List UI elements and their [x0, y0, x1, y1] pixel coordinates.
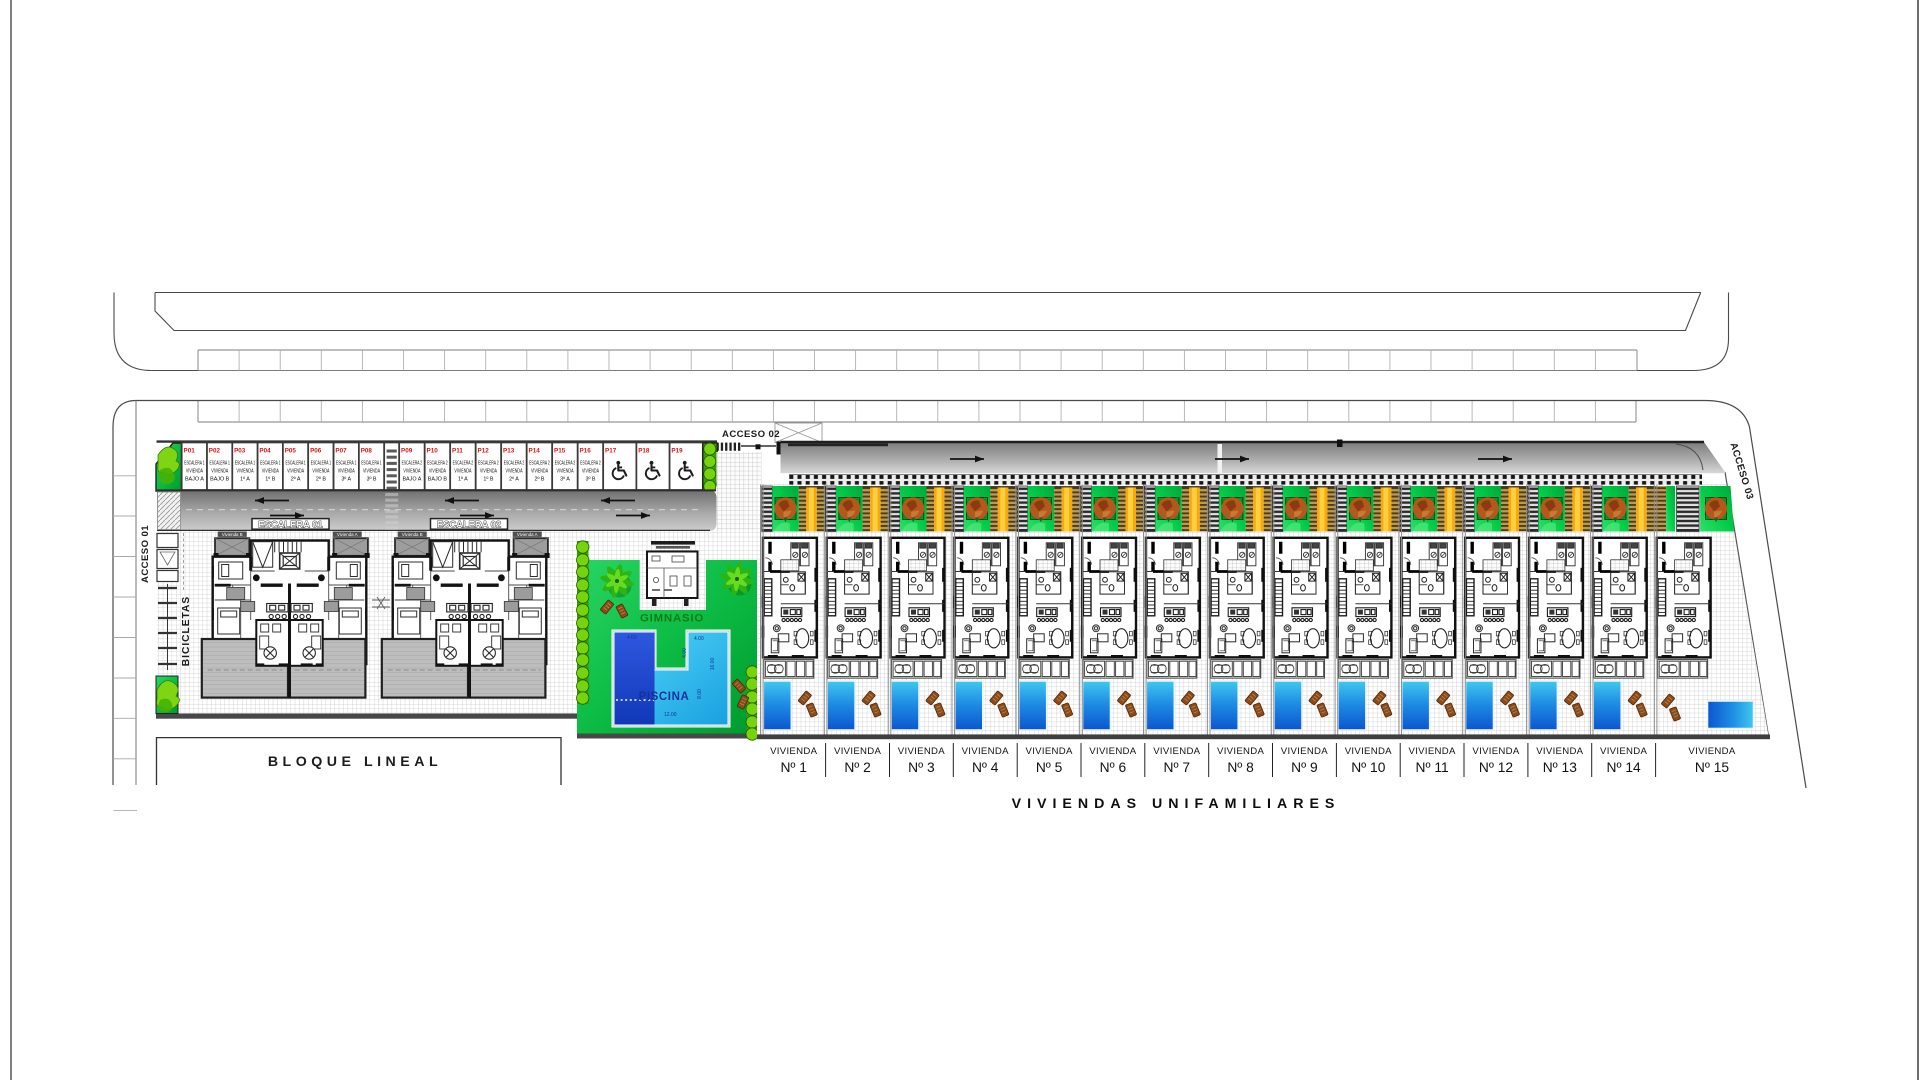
svg-text:P03: P03 [234, 448, 246, 455]
svg-text:16.00: 16.00 [710, 658, 716, 671]
svg-text:VIVIENDA: VIVIENDA [262, 469, 279, 475]
svg-text:Nº 13: Nº 13 [1543, 760, 1578, 775]
svg-text:P06: P06 [310, 448, 322, 455]
svg-text:Nº 7: Nº 7 [1164, 760, 1191, 775]
svg-text:P16: P16 [580, 448, 592, 455]
svg-text:VIVIENDA: VIVIENDA [454, 469, 471, 475]
svg-text:VIVIENDA: VIVIENDA [1688, 746, 1735, 757]
svg-text:Nº 9: Nº 9 [1291, 760, 1318, 775]
svg-text:VIVIENDA: VIVIENDA [1217, 746, 1264, 757]
svg-text:ESCALERA 1: ESCALERA 1 [336, 461, 356, 467]
svg-text:2º B: 2º B [534, 477, 544, 483]
svg-text:Nº 4: Nº 4 [972, 760, 999, 775]
svg-text:Nº 2: Nº 2 [844, 760, 871, 775]
svg-text:ESCALERA 1: ESCALERA 1 [235, 461, 255, 467]
svg-text:VIVIENDA: VIVIENDA [582, 469, 599, 475]
svg-text:ESCALERA 1: ESCALERA 1 [311, 461, 331, 467]
svg-text:P18: P18 [638, 448, 650, 455]
svg-text:P04: P04 [259, 448, 271, 455]
svg-text:ACCESO 02: ACCESO 02 [722, 429, 780, 440]
svg-text:2º A: 2º A [509, 477, 519, 483]
svg-text:ESCALERA 02: ESCALERA 02 [437, 518, 501, 529]
svg-text:3º A: 3º A [341, 477, 351, 483]
svg-text:1º B: 1º B [265, 477, 275, 483]
svg-text:VIVIENDA: VIVIENDA [898, 746, 945, 757]
svg-text:4.00: 4.00 [682, 648, 688, 658]
svg-text:P14: P14 [529, 448, 541, 455]
svg-text:VIVIENDA: VIVIENDA [1089, 746, 1136, 757]
svg-text:VIVIENDA: VIVIENDA [1026, 746, 1073, 757]
svg-text:P07: P07 [335, 448, 347, 455]
svg-text:P10: P10 [427, 448, 439, 455]
svg-text:Nº 15: Nº 15 [1695, 760, 1730, 775]
svg-text:P12: P12 [478, 448, 490, 455]
svg-text:ESCALERA 2: ESCALERA 2 [478, 461, 499, 467]
svg-text:VIVIENDA: VIVIENDA [1472, 746, 1519, 757]
svg-text:Nº 3: Nº 3 [908, 760, 935, 775]
svg-text:VIVIENDA: VIVIENDA [1281, 746, 1328, 757]
svg-text:VIVIENDA: VIVIENDA [1153, 746, 1200, 757]
svg-text:VIVIENDAS UNIFAMILIARES: VIVIENDAS UNIFAMILIARES [1012, 796, 1341, 812]
svg-text:BAJO B: BAJO B [428, 477, 448, 483]
svg-text:VIVIENDA: VIVIENDA [557, 469, 574, 475]
svg-text:3º B: 3º B [585, 477, 595, 483]
svg-text:3º A: 3º A [560, 477, 570, 483]
svg-text:4.00: 4.00 [694, 636, 704, 642]
svg-text:ESCALERA 1: ESCALERA 1 [361, 461, 381, 467]
svg-text:P01: P01 [184, 448, 196, 455]
svg-text:BICICLETAS: BICICLETAS [181, 596, 192, 666]
svg-text:VIVIENDA: VIVIENDA [338, 469, 355, 475]
svg-text:VIVIENDA: VIVIENDA [403, 469, 420, 475]
svg-text:GIMNASIO: GIMNASIO [640, 613, 704, 625]
svg-text:ESCALERA 01: ESCALERA 01 [258, 518, 322, 529]
svg-text:VIVIENDA: VIVIENDA [506, 469, 523, 475]
svg-text:ESCALERA 2: ESCALERA 2 [504, 461, 525, 467]
svg-text:P08: P08 [361, 448, 373, 455]
svg-text:VIVIENDA: VIVIENDA [211, 469, 228, 475]
svg-text:Vivienda A: Vivienda A [517, 532, 538, 537]
svg-text:P17: P17 [605, 448, 617, 455]
svg-text:Nº 5: Nº 5 [1036, 760, 1063, 775]
svg-text:8.00: 8.00 [697, 689, 703, 699]
svg-text:P15: P15 [554, 448, 566, 455]
svg-text:VIVIENDA: VIVIENDA [770, 746, 817, 757]
svg-text:P13: P13 [503, 448, 515, 455]
svg-text:Nº 1: Nº 1 [780, 760, 807, 775]
svg-text:VIVIENDA: VIVIENDA [1409, 746, 1456, 757]
svg-text:VIVIENDA: VIVIENDA [531, 469, 548, 475]
svg-text:VIVIENDA: VIVIENDA [1536, 746, 1583, 757]
svg-text:VIVIENDA: VIVIENDA [1600, 746, 1647, 757]
svg-text:ESCALERA 2: ESCALERA 2 [427, 461, 448, 467]
svg-text:P05: P05 [285, 448, 297, 455]
svg-text:Nº 11: Nº 11 [1416, 760, 1449, 775]
svg-text:ESCALERA 1: ESCALERA 1 [210, 461, 230, 467]
svg-text:ESCALERA 1: ESCALERA 1 [260, 461, 280, 467]
svg-text:1º B: 1º B [483, 477, 493, 483]
svg-text:VIVIENDA: VIVIENDA [1345, 746, 1392, 757]
svg-text:4.00: 4.00 [627, 635, 637, 641]
svg-text:ESCALERA 1: ESCALERA 1 [184, 461, 204, 467]
svg-text:PISCINA: PISCINA [639, 691, 690, 703]
svg-text:ESCALERA 1: ESCALERA 1 [285, 461, 305, 467]
svg-text:BAJO B: BAJO B [210, 477, 230, 483]
svg-text:VIVIENDA: VIVIENDA [312, 469, 329, 475]
svg-text:Nº 12: Nº 12 [1479, 760, 1513, 775]
svg-text:ACCESO 01: ACCESO 01 [140, 525, 151, 583]
svg-text:VIVIENDA: VIVIENDA [962, 746, 1009, 757]
svg-text:1º A: 1º A [458, 477, 468, 483]
svg-text:12.00: 12.00 [664, 712, 677, 718]
svg-text:3º B: 3º B [366, 477, 376, 483]
svg-text:Nº 14: Nº 14 [1607, 760, 1642, 775]
svg-text:VIVIENDA: VIVIENDA [186, 469, 203, 475]
svg-text:ESCALERA 2: ESCALERA 2 [402, 461, 423, 467]
svg-text:Vivienda B: Vivienda B [222, 532, 243, 537]
svg-text:VIVIENDA: VIVIENDA [480, 469, 497, 475]
svg-text:2º B: 2º B [316, 477, 326, 483]
svg-text:Nº 8: Nº 8 [1227, 760, 1254, 775]
svg-text:ESCALERA 2: ESCALERA 2 [555, 461, 576, 467]
svg-text:VIVIENDA: VIVIENDA [834, 746, 881, 757]
svg-text:VIVIENDA: VIVIENDA [363, 469, 380, 475]
svg-text:P02: P02 [209, 448, 221, 455]
svg-text:Nº 10: Nº 10 [1351, 760, 1386, 775]
svg-text:P19: P19 [671, 448, 683, 455]
svg-text:ESCALERA 2: ESCALERA 2 [580, 461, 601, 467]
svg-text:ESCALERA 2: ESCALERA 2 [529, 461, 550, 467]
svg-text:ESCALERA 2: ESCALERA 2 [453, 461, 474, 467]
svg-text:P11: P11 [452, 448, 463, 455]
svg-text:Vivienda B: Vivienda B [402, 532, 423, 537]
svg-text:1º A: 1º A [240, 477, 250, 483]
svg-text:BLOQUE LINEAL: BLOQUE LINEAL [268, 754, 442, 770]
svg-text:BAJO A: BAJO A [185, 477, 204, 483]
svg-text:Vivienda A: Vivienda A [337, 532, 358, 537]
svg-text:VIVIENDA: VIVIENDA [429, 469, 446, 475]
svg-text:VIVIENDA: VIVIENDA [287, 469, 304, 475]
svg-text:P09: P09 [401, 448, 413, 455]
svg-text:BAJO A: BAJO A [402, 477, 421, 483]
svg-text:2º A: 2º A [291, 477, 301, 483]
svg-text:VIVIENDA: VIVIENDA [237, 469, 254, 475]
svg-text:Nº 6: Nº 6 [1100, 760, 1127, 775]
